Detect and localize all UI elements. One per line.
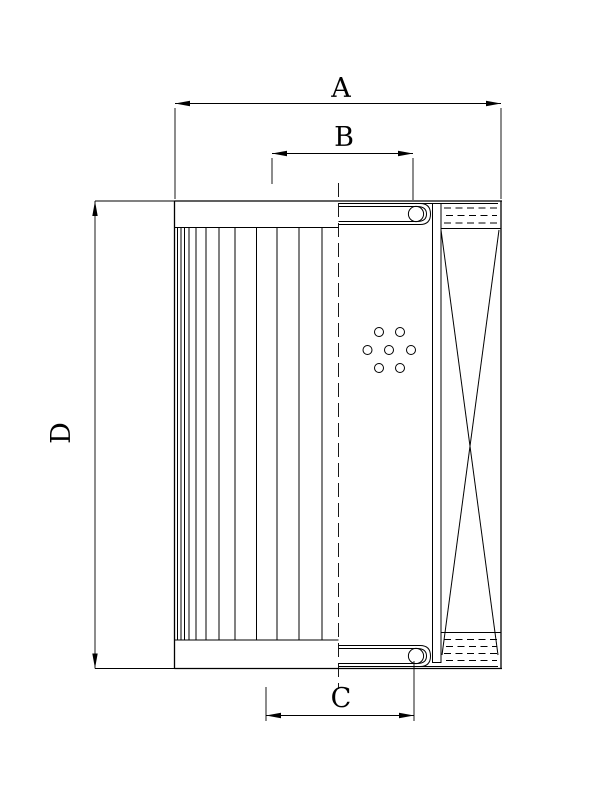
bottom-seal-groove [339, 646, 499, 667]
o-ring-bottom [408, 648, 423, 663]
dimension-d: D [46, 201, 175, 669]
dimension-d-label: D [46, 422, 77, 444]
perforation-hole [375, 328, 384, 337]
pleated-media [178, 228, 323, 641]
dimension-a-label: A [330, 73, 351, 104]
dimension-c-arrow-right [399, 713, 414, 718]
perforation-hole [396, 328, 405, 337]
dimension-b-label: B [334, 122, 354, 153]
filter-element-technical-drawing: A B C D [0, 0, 612, 792]
o-ring-top [408, 206, 423, 221]
dimension-d-arrow-bottom [92, 654, 97, 669]
core-tube-hatched-wall [433, 204, 442, 663]
dimension-b: B [272, 122, 413, 200]
dimension-c-label: C [331, 683, 352, 714]
perforation-hole [407, 346, 416, 355]
perforation-hole [385, 346, 394, 355]
dimension-c-arrow-left [266, 713, 281, 718]
perforation-hole [363, 346, 372, 355]
perforation-hole [375, 364, 384, 373]
media-cross-section [441, 229, 501, 656]
bottom-groove-inner-wall [339, 649, 427, 664]
dimension-d-arrow-top [92, 201, 97, 216]
top-seal-groove [339, 204, 499, 225]
perforation-hole [396, 364, 405, 373]
drawing-sheet: A B C D [0, 0, 612, 792]
dimension-a-arrow-left [175, 101, 190, 106]
media-x-diagonal-2 [442, 230, 499, 655]
top-groove-inner-wall [339, 207, 427, 222]
dimension-a-arrow-right [486, 101, 501, 106]
dimension-b-arrow-right [398, 151, 413, 156]
media-x-diagonal-1 [441, 230, 498, 655]
core-perforation-holes [363, 328, 416, 373]
dimension-b-arrow-left [272, 151, 287, 156]
dimension-c: C [266, 661, 414, 721]
top-cap-potting [444, 208, 497, 223]
bottom-cap-potting [444, 640, 497, 661]
core-tube-section [433, 204, 442, 663]
